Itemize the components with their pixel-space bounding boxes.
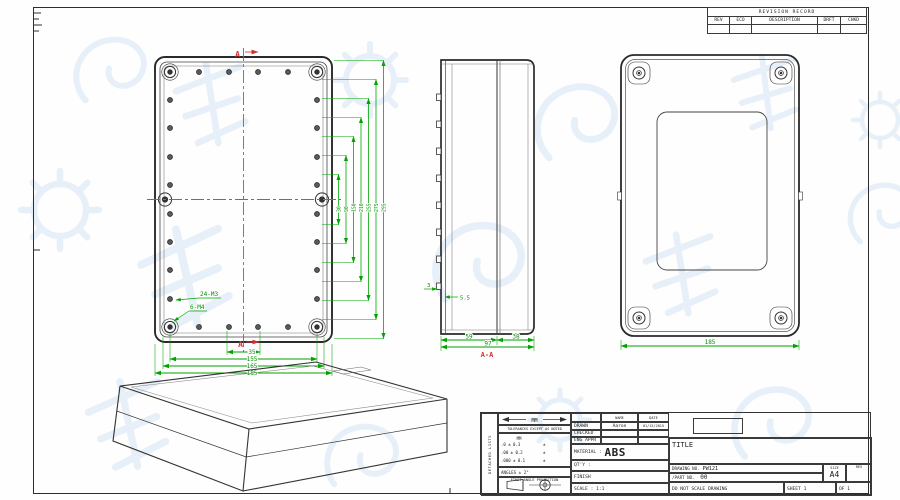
angles-tolerance-note: ANGLES ± 2° [498, 467, 571, 477]
revision-table-title: REVISION RECORD [708, 8, 866, 17]
drawing-sheet: A A 35 155 165 185 [0, 0, 900, 500]
eng-appr-label: ENG APPR [571, 437, 601, 444]
revision-col-drft: DRFT [818, 17, 841, 25]
drawing-no-label: DRAWING NO. [672, 466, 700, 471]
material-value: ABS [604, 446, 625, 459]
dim-35: 35 [248, 349, 256, 356]
title-block-side-label: DETACHED LISTS [487, 435, 492, 474]
no-scale-note: DO NOT SCALE DRAWING [669, 482, 784, 496]
side-section-view: 3 5.5 59 38 97 A-A [424, 60, 534, 359]
title-block: DETACHED LISTS MM TOLERANCES EXCEPT AS N… [480, 412, 871, 495]
dim-base: 59 [465, 334, 473, 341]
material-label: MATERIAL : [574, 450, 602, 455]
drawn-name: Aaron [601, 422, 638, 430]
drawing-no-value: PW121 [703, 466, 719, 472]
revision-col-description: DESCRIPTION [752, 17, 818, 25]
centerlines [147, 48, 341, 352]
checked-name [601, 430, 638, 437]
units-arrows-icon: MM [499, 414, 570, 425]
units-label: MM [531, 418, 537, 424]
drawn-date: 01/15/2015 [638, 422, 669, 430]
right-dim-4: 255 [367, 203, 373, 212]
sheet-label: SHEET 1 [784, 482, 836, 496]
checked-date [638, 430, 669, 437]
sheet-of-label: OF 1 [836, 482, 872, 496]
tolerance-mark: ± [543, 458, 545, 466]
bottom-dim-lines [155, 352, 332, 373]
right-dim-2: 150 [352, 203, 358, 212]
rev-label: REV [856, 466, 862, 470]
revision-col-chkd: CHKD [841, 17, 866, 25]
scale-label: SCALE : 1:1 [571, 483, 669, 496]
right-dim-3: 210 [359, 203, 365, 212]
thread-callouts: 24-M3 6-M4 [174, 291, 221, 321]
date-header: DATE [638, 413, 669, 422]
dim-boss: 5.5 [460, 296, 470, 302]
size-value: A4 [830, 471, 840, 480]
part-no-label: /PART NO. [672, 475, 695, 480]
thread-label-m3: 24-M3 [200, 291, 218, 298]
cover-view: 185 [618, 55, 803, 350]
cover-recess [657, 112, 767, 270]
front-view: A A 35 155 165 185 [147, 48, 388, 377]
thread-label-m4: 6-M4 [190, 304, 205, 311]
tolerance-units-header: MM [499, 434, 539, 442]
section-marker-top: A [235, 50, 240, 59]
tolerance-note: TOLERANCES EXCEPT AS NOTED [498, 425, 571, 433]
revision-empty-cell [841, 25, 866, 33]
tolerance-row: .00 ± 0.2 [499, 450, 543, 458]
eng-appr-date [638, 437, 669, 444]
drawn-label: DRAWN [571, 422, 601, 430]
signature-header-blank [571, 413, 601, 422]
revision-empty-cell [708, 25, 730, 33]
fold-ticks [33, 13, 450, 494]
revision-col-eco: ECO [730, 17, 752, 25]
right-dim-0: 30 [337, 206, 343, 212]
qty-label: QT'Y : [571, 460, 669, 471]
units-arrow-cell: MM [498, 413, 571, 425]
dim-155: 155 [247, 356, 258, 363]
right-dim-1: 90 [344, 206, 350, 212]
tolerance-row: .0 ± 0.3 [499, 442, 543, 450]
section-title: A-A [481, 351, 494, 359]
tolerance-mark: ± [543, 442, 545, 450]
logo-box [693, 418, 743, 434]
revision-empty-cell [752, 25, 818, 33]
dim-lid: 38 [512, 334, 520, 341]
dim-width: 185 [705, 339, 716, 346]
isometric-view [113, 362, 447, 491]
dim-total: 97 [484, 341, 492, 348]
tolerance-row: .000 ± 0.1 [499, 458, 543, 466]
first-angle-projection-icon [499, 479, 570, 491]
revision-col-rev: REV [708, 17, 730, 25]
section-marker-bottom: A [238, 340, 243, 349]
revision-table: REVISION RECORD REV ECO DESCRIPTION DRFT… [707, 7, 867, 34]
title-label: TITLE [669, 438, 872, 464]
finish-label: FINISH [571, 471, 669, 483]
part-no-value: 00 [700, 474, 707, 481]
revision-empty-cell [730, 25, 752, 33]
tolerance-mark: ± [543, 450, 545, 458]
right-dim-5: 275 [374, 203, 380, 212]
checked-label: CHECKED [571, 430, 601, 437]
name-header: NAME [601, 413, 638, 422]
right-dim-6: 295 [382, 203, 388, 212]
revision-empty-cell [818, 25, 841, 33]
dim-wall: 3 [427, 283, 430, 289]
eng-appr-name [601, 437, 638, 444]
